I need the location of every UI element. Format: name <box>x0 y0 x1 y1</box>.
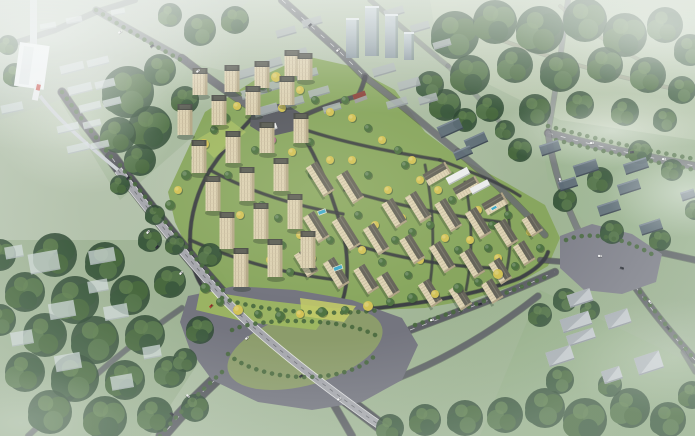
context-building-gray <box>410 21 430 34</box>
car <box>590 142 595 145</box>
forest-blob <box>661 159 683 181</box>
apartment-tower <box>239 167 257 206</box>
apartment-tower <box>224 65 242 97</box>
forest-blob <box>525 388 565 428</box>
forest-blob <box>184 14 216 46</box>
forest-blob <box>587 47 623 83</box>
apartment-tower <box>245 86 263 120</box>
forest-blob <box>158 3 182 27</box>
forest-blob <box>173 348 197 372</box>
forest-blob <box>186 316 214 344</box>
forest-blob <box>495 120 515 140</box>
context-building-gray <box>275 25 296 38</box>
glass-highrise <box>365 6 379 56</box>
glass-highrise <box>385 14 398 58</box>
context-building-dark <box>437 118 464 139</box>
apartment-tower <box>233 248 251 292</box>
aerial-rendering <box>0 0 695 436</box>
apartment-tower <box>177 104 195 140</box>
forest-blob <box>653 108 677 132</box>
forest-blob <box>546 366 574 394</box>
context-building-light <box>604 308 631 330</box>
forest-blob <box>450 55 490 95</box>
apartment-tower <box>279 76 297 110</box>
forest-blob <box>668 76 695 104</box>
apartment-tower <box>253 203 271 244</box>
forest-blob <box>447 400 483 436</box>
forest-blob <box>566 91 594 119</box>
apartment-tower <box>211 95 229 130</box>
forest-blob <box>5 272 45 312</box>
forest-blob <box>144 54 176 86</box>
forest-blob <box>487 397 523 433</box>
forest-blob <box>128 106 172 150</box>
forest-blob <box>28 390 72 434</box>
forest-blob <box>154 266 186 298</box>
apartment-tower <box>219 212 237 254</box>
apartment-tower <box>259 122 277 158</box>
forest-blob <box>647 7 683 43</box>
aerial-rendering-scene <box>0 0 695 436</box>
forest-blob <box>528 303 552 327</box>
context-building-gray <box>372 63 397 78</box>
forest-blob <box>473 0 517 44</box>
apartment-tower <box>297 53 315 85</box>
forest-blob <box>540 52 580 92</box>
station-structure <box>30 0 37 46</box>
forest-blob <box>497 47 533 83</box>
apartment-tower <box>205 176 223 216</box>
forest-blob <box>124 144 156 176</box>
glass-highrise <box>346 18 359 58</box>
forest-blob <box>508 138 532 162</box>
glass-highrise <box>404 32 414 60</box>
forest-blob <box>563 0 607 42</box>
apartment-tower <box>225 131 243 168</box>
car <box>598 255 603 258</box>
forest-blob <box>165 235 185 255</box>
forest-blob <box>5 352 45 392</box>
forest-blob <box>516 6 564 54</box>
car <box>662 158 667 161</box>
apartment-tower <box>300 231 318 273</box>
forest-blob <box>137 397 173 433</box>
forest-blob <box>553 188 577 212</box>
apartment-tower <box>287 194 305 234</box>
apartment-tower <box>191 140 209 178</box>
forest-blob <box>409 404 441 436</box>
forest-blob <box>611 98 639 126</box>
apartment-tower <box>293 113 311 148</box>
apartment-tower <box>192 68 210 100</box>
car <box>630 151 635 154</box>
apartment-tower <box>273 158 291 196</box>
forest-blob <box>519 94 551 126</box>
context-building-ghost <box>66 142 89 155</box>
forest-blob <box>181 394 209 422</box>
forest-blob <box>476 94 504 122</box>
forest-blob <box>221 6 249 34</box>
forest-blob <box>431 11 479 59</box>
forest-blob <box>630 57 666 93</box>
apartment-tower <box>267 239 285 282</box>
